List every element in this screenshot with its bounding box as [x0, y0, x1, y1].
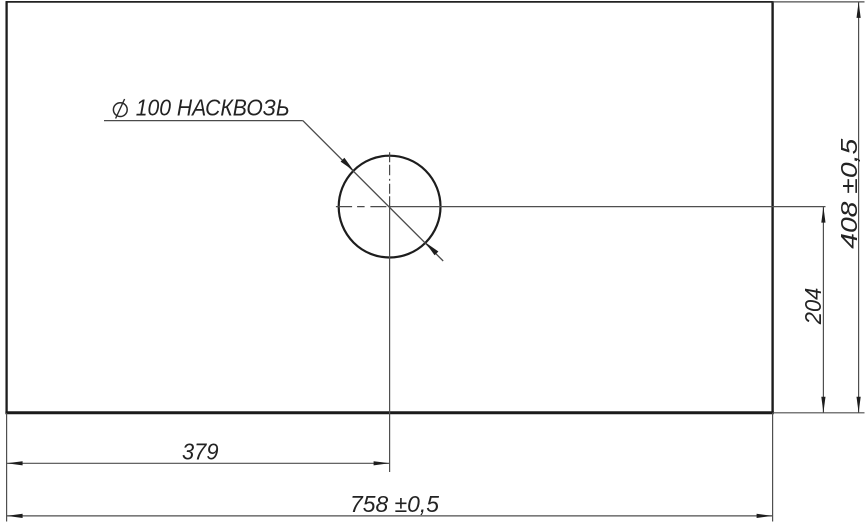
svg-text:100 НАСКВОЗЬ: 100 НАСКВОЗЬ [136, 94, 290, 120]
svg-text:204: 204 [800, 288, 826, 325]
svg-text:379: 379 [182, 438, 219, 464]
svg-text:408 ±0,5: 408 ±0,5 [836, 139, 862, 249]
svg-text:758 ±0,5: 758 ±0,5 [350, 491, 439, 517]
